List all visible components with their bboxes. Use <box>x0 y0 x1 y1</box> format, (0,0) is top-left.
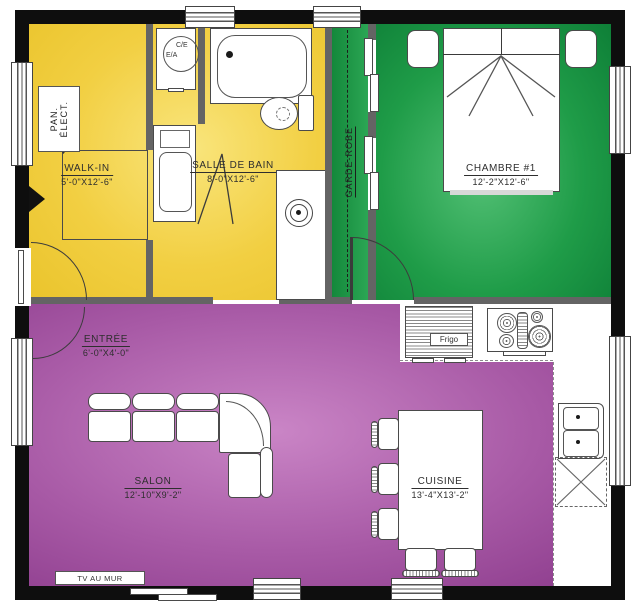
bath-counter <box>276 170 325 300</box>
sink-drain-2 <box>576 440 580 444</box>
room-label-walkin: WALK-IN 5'-0"X12'-6" <box>61 163 113 187</box>
water-heater-label-bottom: E/A <box>166 52 177 59</box>
sofa-seat <box>132 411 175 442</box>
stove-burner <box>528 325 551 348</box>
bathtub-drain <box>226 51 233 58</box>
tv-wall-box: TV AU MUR <box>55 571 145 585</box>
patio-door-panel-2 <box>158 594 217 601</box>
nightstand-left <box>407 30 439 68</box>
fridge <box>405 306 473 358</box>
floor-plan: C/E E/A PAN. ÉLECT. Frigo <box>0 0 640 613</box>
sliding-door-panel <box>370 172 379 210</box>
chair-back <box>402 570 440 577</box>
chair-seat <box>405 548 437 571</box>
vanity-backsplash <box>160 130 190 148</box>
chair-seat <box>378 508 399 540</box>
bathtub-inner <box>217 35 307 98</box>
sink-drain-1 <box>576 415 580 419</box>
sofa-seat <box>88 411 131 442</box>
window-right-2 <box>609 336 631 486</box>
front-door-leaf <box>18 250 24 304</box>
chair-seat <box>378 418 399 450</box>
fridge-handle-1 <box>412 358 434 363</box>
electrical-panel: PAN. ÉLECT. <box>38 86 80 152</box>
room-label-chambre: CHAMBRE #1 12'-2"X12'-6" <box>464 163 538 187</box>
sink-basin-2 <box>563 430 599 457</box>
tv-label: TV AU MUR <box>77 574 122 583</box>
sofa-back-cushion <box>88 393 131 410</box>
electrical-panel-label-1: PAN. <box>49 107 59 131</box>
toilet-drain <box>276 107 290 121</box>
sofa-back-cushion <box>132 393 175 410</box>
sofa-seat <box>228 453 261 498</box>
chair-back <box>371 511 378 538</box>
washer-tab <box>168 88 184 92</box>
chair-seat <box>378 463 399 495</box>
window-left-2 <box>11 338 33 446</box>
toilet-tank <box>298 95 314 131</box>
room-label-garde-robe: GARDE-ROBE <box>332 24 368 300</box>
stove-burner <box>499 334 514 348</box>
sofa-seat <box>176 411 219 442</box>
chair-back <box>371 421 378 448</box>
room-label-entree: ENTRÉE 6'-0"X4'-0" <box>82 334 130 358</box>
vanity-sink <box>159 152 192 212</box>
sofa-back-cushion <box>260 447 273 498</box>
window-right-1 <box>609 66 631 154</box>
bed-footboard <box>450 190 553 195</box>
round-sink-drain <box>296 210 301 215</box>
fridge-label-box: Frigo <box>430 333 468 346</box>
stove-burner <box>497 313 517 333</box>
fridge-label: Frigo <box>440 335 458 344</box>
chair-back <box>441 570 479 577</box>
stove-center-element <box>517 312 528 349</box>
stove-burner <box>531 311 543 323</box>
chair-seat <box>444 548 476 571</box>
sliding-door-panel <box>370 74 379 112</box>
sofa-back-cushion <box>176 393 219 410</box>
window-bottom-2 <box>391 578 443 600</box>
room-label-cuisine: CUISINE 13'-4"X13'-2" <box>411 476 468 500</box>
window-bottom-1 <box>253 578 301 600</box>
nightstand-right <box>565 30 597 68</box>
dishwasher <box>555 457 607 507</box>
window-left-1 <box>11 62 33 166</box>
electrical-panel-label-2: ÉLECT. <box>59 101 69 138</box>
sink-basin-1 <box>563 407 599 430</box>
room-label-bathroom: SALLE DE BAIN 8'-0"X12'-6" <box>190 160 276 184</box>
bed-pillow-divider <box>501 28 502 55</box>
room-label-salon: SALON 12'-10"X9'-2" <box>124 476 181 500</box>
fridge-handle-2 <box>444 358 466 363</box>
water-heater-label-top: C/E <box>176 42 188 49</box>
window-top-1 <box>185 6 235 28</box>
chair-back <box>371 466 378 493</box>
stove-front <box>503 351 546 356</box>
